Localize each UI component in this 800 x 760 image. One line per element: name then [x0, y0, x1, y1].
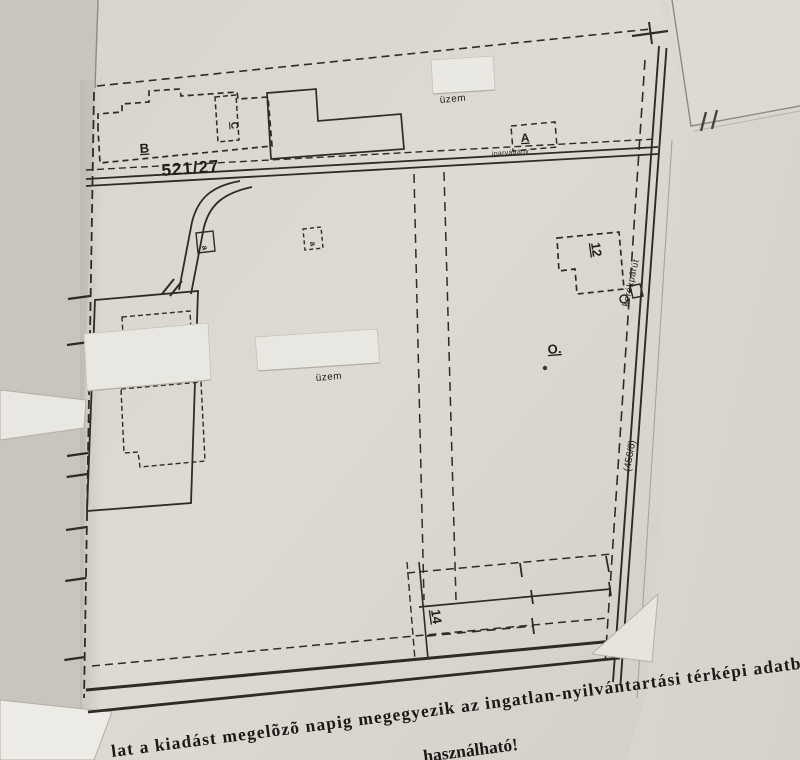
tape-patch-left [84, 323, 211, 391]
building-14-label: 14 [428, 608, 445, 625]
factory-label-center: üzem [315, 371, 342, 384]
building-b-label: B [139, 140, 149, 156]
building-12-label: 12 [588, 241, 605, 257]
survey-point-dot [543, 366, 547, 370]
map-canvas: üzem üzem B C A 521/27 iparvágány kerékp… [0, 0, 800, 760]
cadastral-map-photo: üzem üzem B C A 521/27 iparvágány kerékp… [0, 0, 800, 760]
building-c-label: C [228, 121, 239, 129]
tape-patch-top [431, 56, 495, 94]
factory-label-top: üzem [439, 93, 466, 106]
point-o-label: O. [547, 341, 562, 357]
building-a-label: A [520, 131, 530, 145]
